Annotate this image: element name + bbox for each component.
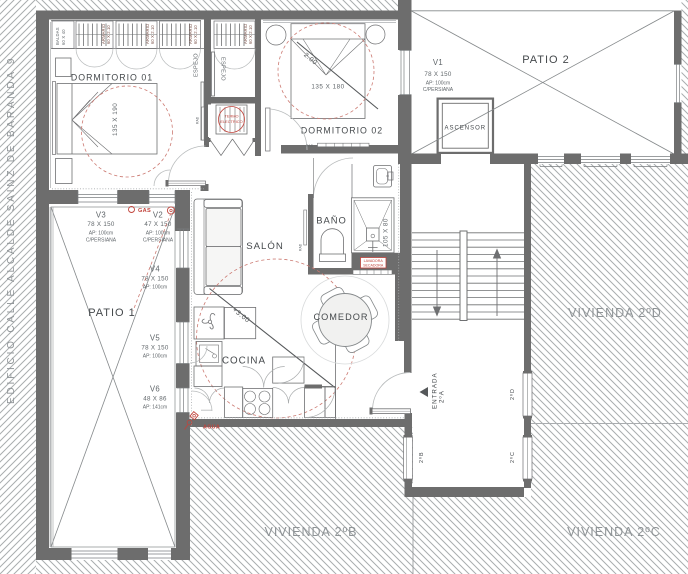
svg-text:C/PERSIANA: C/PERSIANA (423, 87, 454, 93)
svg-text:AP: 100cm: AP: 100cm (426, 81, 450, 87)
svg-text:60 X 2.10: 60 X 2.10 (106, 25, 111, 44)
svg-text:VIVIENDA 2ºC: VIVIENDA 2ºC (567, 525, 661, 539)
svg-text:TERMO: TERMO (224, 114, 238, 119)
svg-text:SALÓN: SALÓN (246, 241, 284, 252)
svg-text:60 X 2.10: 60 X 2.10 (248, 25, 253, 44)
svg-text:VIVIENDA 2ºD: VIVIENDA 2ºD (568, 306, 662, 320)
svg-text:ENTRADA: ENTRADA (432, 372, 439, 409)
svg-text:78 X 150: 78 X 150 (141, 345, 168, 352)
svg-text:V6: V6 (150, 385, 160, 394)
svg-text:2ºB: 2ºB (419, 451, 425, 463)
svg-text:60 X 2.10: 60 X 2.10 (193, 25, 198, 44)
svg-text:DORMITORIO 01: DORMITORIO 01 (71, 73, 153, 83)
svg-text:RAD: RAD (306, 144, 314, 148)
svg-text:BAÑO: BAÑO (316, 215, 347, 226)
svg-text:LAVADORA: LAVADORA (364, 259, 384, 263)
svg-text:AGUA: AGUA (203, 425, 220, 431)
svg-text:AP: 141cm: AP: 141cm (143, 405, 167, 411)
svg-text:60 X 2.10: 60 X 2.10 (150, 25, 155, 44)
svg-text:BALDAS: BALDAS (55, 27, 60, 45)
svg-text:RAD: RAD (299, 243, 303, 251)
svg-text:78 X 150: 78 X 150 (87, 221, 114, 228)
svg-text:135 X 180: 135 X 180 (311, 84, 344, 91)
svg-text:ESPEJO: ESPEJO (220, 57, 226, 81)
svg-text:48 X 86: 48 X 86 (143, 396, 167, 403)
svg-text:EDIFICIO CALLE ALCALDE SAINZ D: EDIFICIO CALLE ALCALDE SAINZ DE BARANDA … (6, 56, 17, 404)
svg-text:C/PERSIANA: C/PERSIANA (86, 238, 117, 244)
svg-text:AP: 100cm: AP: 100cm (146, 231, 170, 237)
svg-text:2ºA: 2ºA (439, 390, 446, 403)
svg-text:78 X 150: 78 X 150 (424, 71, 451, 78)
svg-text:C/PERSIANA: C/PERSIANA (143, 238, 174, 244)
svg-text:V3: V3 (96, 211, 106, 220)
svg-text:135 X 190: 135 X 190 (112, 103, 119, 136)
svg-text:AP: 100cm: AP: 100cm (143, 354, 167, 360)
svg-text:V2: V2 (153, 211, 163, 220)
svg-text:PATIO 1: PATIO 1 (88, 307, 136, 319)
svg-text:105 X 80: 105 X 80 (383, 218, 390, 247)
svg-text:DORMITORIO 02: DORMITORIO 02 (301, 126, 383, 136)
svg-text:V1: V1 (433, 58, 443, 67)
svg-text:ELECTRICO: ELECTRICO (220, 119, 242, 124)
svg-text:GAS: GAS (138, 208, 151, 214)
svg-text:COCINA: COCINA (222, 356, 266, 367)
svg-text:RAD: RAD (196, 116, 200, 124)
svg-text:ESPEJO: ESPEJO (194, 53, 200, 77)
svg-text:47 X 150: 47 X 150 (144, 221, 171, 228)
svg-text:V5: V5 (150, 334, 161, 343)
svg-text:60 X 40: 60 X 40 (61, 29, 66, 45)
svg-text:VIVIENDA 2ºB: VIVIENDA 2ºB (265, 525, 358, 539)
svg-text:PATIO 2: PATIO 2 (522, 54, 570, 66)
svg-text:V4: V4 (150, 265, 161, 274)
svg-text:AP: 100cm: AP: 100cm (89, 231, 113, 237)
svg-text:AP: 100cm: AP: 100cm (143, 285, 167, 291)
svg-text:2ºD: 2ºD (510, 388, 516, 400)
svg-text:COMEDOR: COMEDOR (314, 312, 369, 322)
svg-text:2ºC: 2ºC (510, 451, 516, 463)
svg-text:SECADORA: SECADORA (363, 264, 384, 268)
svg-text:ASCENSOR: ASCENSOR (444, 126, 486, 132)
